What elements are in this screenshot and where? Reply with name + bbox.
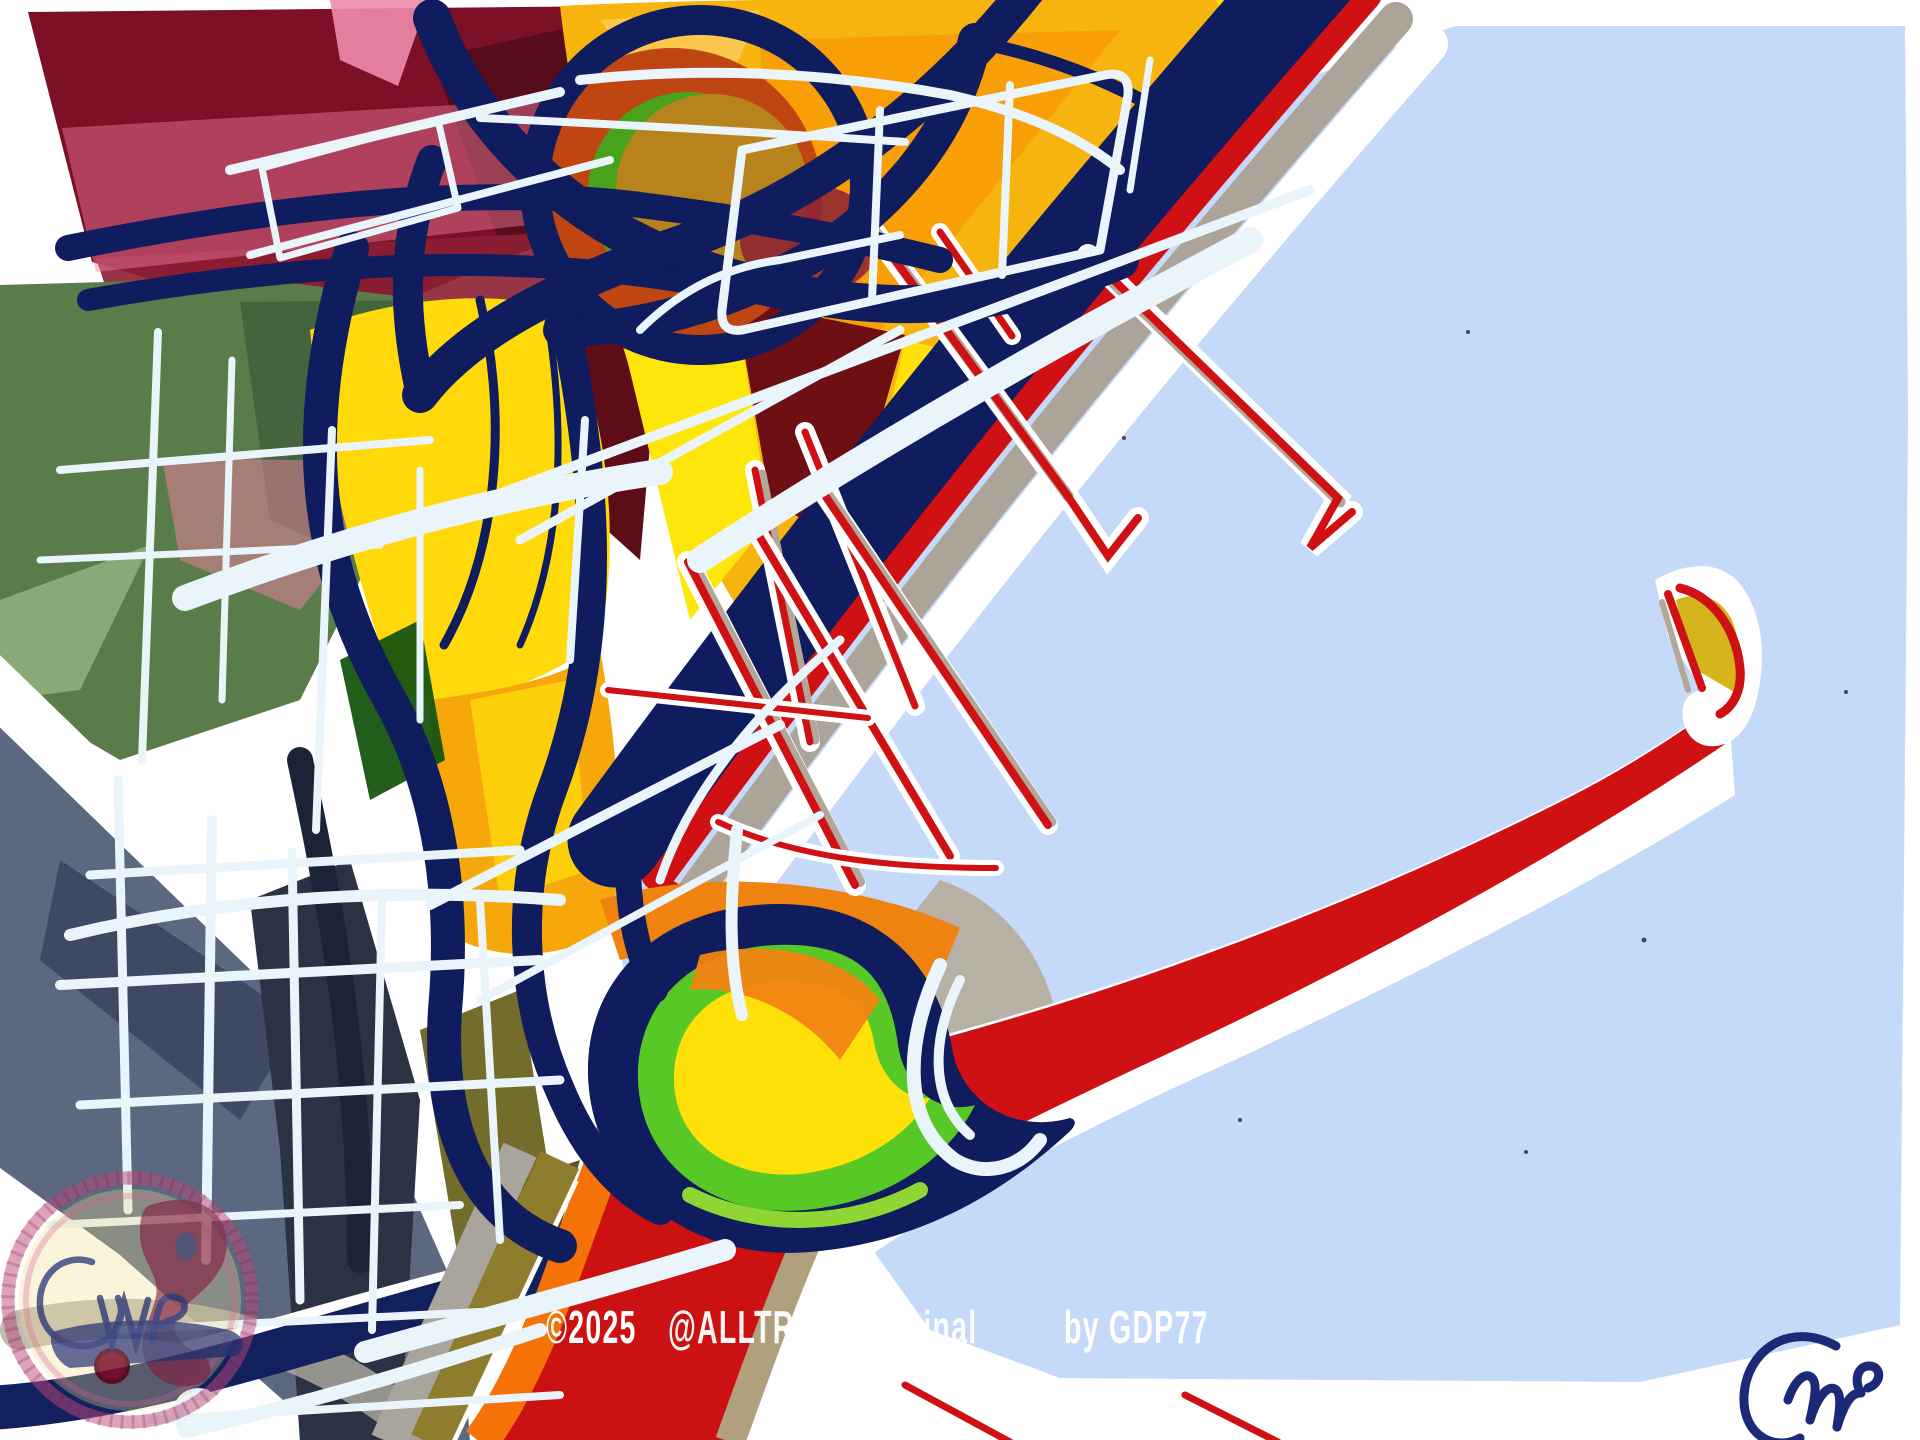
byline-text: by GDP77 <box>1064 1300 1209 1354</box>
abstract-painting <box>0 0 1920 1440</box>
watermark-logo <box>8 1178 252 1422</box>
copyright-text: ©2025 <box>546 1300 637 1354</box>
artist-handle-text: @ALLTRAITSoriginal <box>668 1300 977 1354</box>
artwork-canvas: ©2025 @ALLTRAITSoriginal by GDP77 <box>0 0 1920 1440</box>
